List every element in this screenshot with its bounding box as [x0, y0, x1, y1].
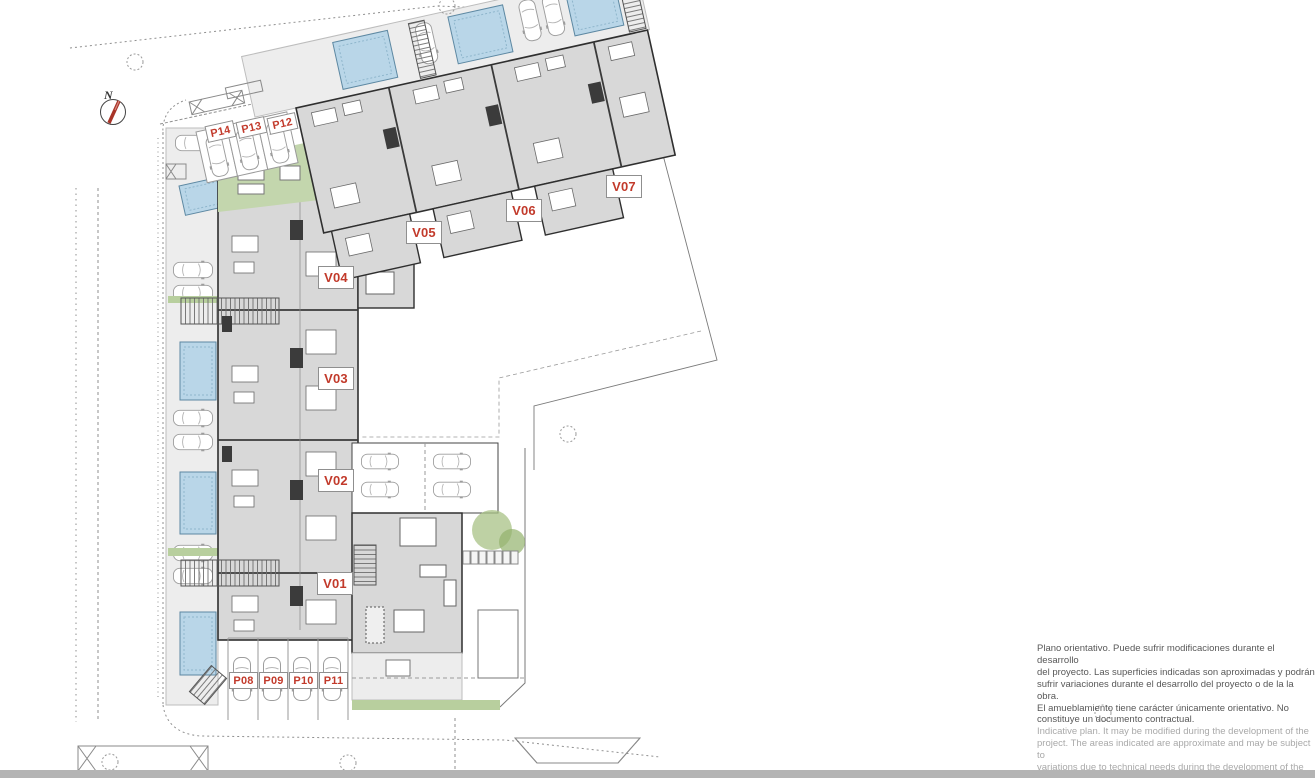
disclaimer-es-line: del proyecto. Las superficies indicadas …: [1037, 667, 1315, 679]
bottom-bar: [0, 770, 1315, 778]
unit-label-v01: V01: [317, 572, 353, 595]
disclaimer-es-line: sufrir variaciones durante el desarrollo…: [1037, 679, 1315, 703]
unit-label-v06: V06: [506, 199, 542, 222]
parking-label-p10: P10: [289, 672, 318, 689]
unit-label-v07: V07: [606, 175, 642, 198]
street-left: [76, 188, 98, 722]
trellis: [463, 551, 518, 564]
disclaimer: Plano orientativo. Puede sufrir modifica…: [1037, 643, 1315, 778]
disclaimer-en-line: Indicative plan. It may be modified duri…: [1037, 726, 1315, 738]
communal-area: [352, 443, 525, 710]
stairs: [354, 545, 376, 585]
disclaimer-en-line: project. The areas indicated are approxi…: [1037, 738, 1315, 762]
parking-label-p09: P09: [259, 672, 288, 689]
unit-label-v05: V05: [406, 221, 442, 244]
unit-label-v03: V03: [318, 367, 354, 390]
disclaimer-es-line: El amueblamiento tiene carácter únicamen…: [1037, 703, 1315, 715]
green-strip: [168, 548, 224, 556]
compass-icon: [101, 100, 126, 125]
green-strip: [352, 700, 500, 710]
parking-label-p11: P11: [319, 672, 348, 689]
stairs: [181, 560, 279, 586]
unit-label-v02: V02: [318, 469, 354, 492]
compass-label: N: [104, 88, 113, 103]
site-plan: V01 V02 V03 V04 V05 V06 V07 P14 P13 P12 …: [0, 0, 1315, 778]
unit-label-v04: V04: [318, 266, 354, 289]
parking-label-p08: P08: [229, 672, 258, 689]
disclaimer-es-line: Plano orientativo. Puede sufrir modifica…: [1037, 643, 1315, 667]
disclaimer-es-line: constituye un documento contractual.: [1037, 714, 1315, 726]
communal-pool: [478, 610, 518, 678]
